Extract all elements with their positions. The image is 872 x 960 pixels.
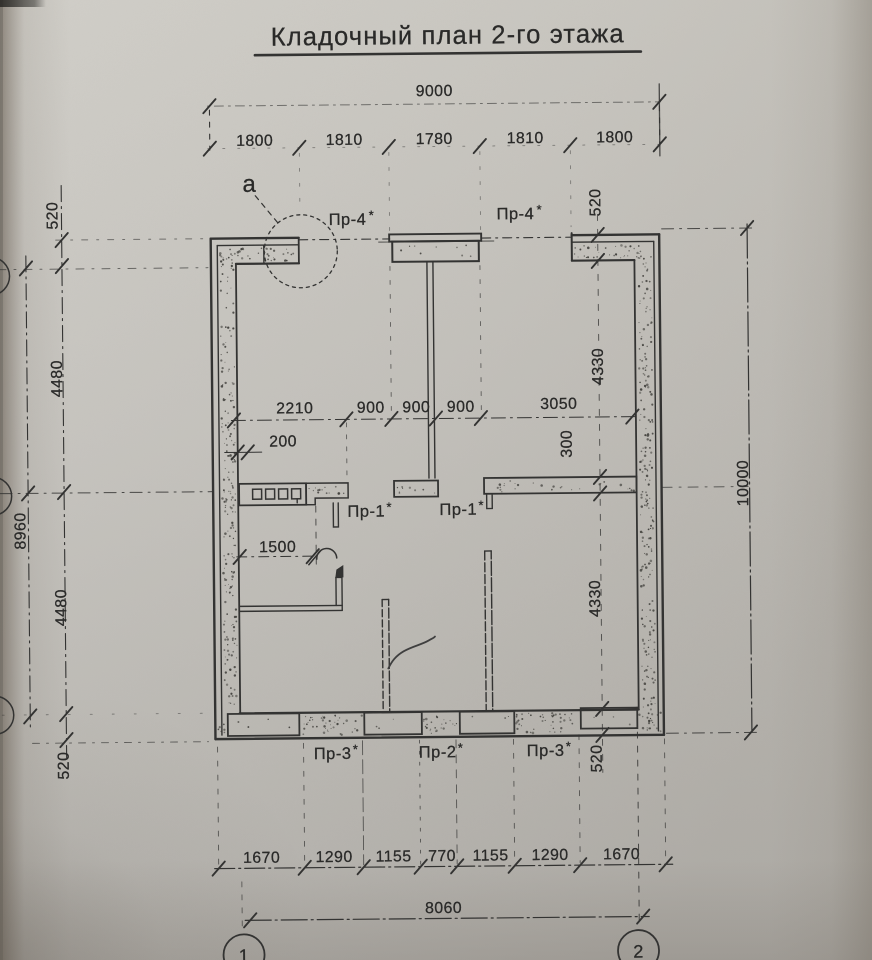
svg-text:1155: 1155 xyxy=(473,847,509,864)
svg-text:770: 770 xyxy=(428,848,456,865)
svg-text:4480: 4480 xyxy=(53,589,70,626)
svg-text:Пр-1: Пр-1 xyxy=(439,501,477,519)
svg-text:520: 520 xyxy=(56,752,73,780)
svg-text:1800: 1800 xyxy=(236,133,273,150)
svg-text:900: 900 xyxy=(357,399,385,416)
svg-text:1810: 1810 xyxy=(507,130,544,147)
svg-text:2: 2 xyxy=(633,942,644,960)
svg-text:Пр-1: Пр-1 xyxy=(347,502,385,520)
svg-text:1670: 1670 xyxy=(243,850,280,867)
svg-text:1: 1 xyxy=(239,946,250,960)
svg-text:Пр-4: Пр-4 xyxy=(497,205,535,223)
svg-text:4480: 4480 xyxy=(49,360,66,397)
svg-text:1780: 1780 xyxy=(416,131,453,148)
svg-text:1290: 1290 xyxy=(531,847,568,864)
svg-text:8060: 8060 xyxy=(425,900,462,917)
svg-text:10000: 10000 xyxy=(735,460,752,507)
svg-text:*: * xyxy=(458,740,464,755)
svg-text:1290: 1290 xyxy=(315,849,352,866)
svg-text:2210: 2210 xyxy=(276,400,313,417)
svg-text:Пр-4: Пр-4 xyxy=(329,211,367,229)
svg-text:Пр-3: Пр-3 xyxy=(314,745,352,763)
svg-text:*: * xyxy=(353,742,359,757)
svg-text:Пр-3: Пр-3 xyxy=(527,742,565,760)
svg-text:4330: 4330 xyxy=(587,580,604,617)
svg-text:520: 520 xyxy=(44,202,61,230)
svg-text:900: 900 xyxy=(402,399,430,416)
svg-text:*: * xyxy=(566,739,572,754)
svg-text:*: * xyxy=(369,208,375,223)
svg-text:1810: 1810 xyxy=(326,132,363,149)
svg-text:520: 520 xyxy=(589,744,606,772)
svg-text:1155: 1155 xyxy=(376,848,412,865)
svg-text:*: * xyxy=(386,499,392,514)
svg-text:8960: 8960 xyxy=(12,512,29,549)
svg-text:4330: 4330 xyxy=(590,348,607,385)
svg-text:а: а xyxy=(242,171,256,198)
svg-text:1670: 1670 xyxy=(603,846,640,863)
svg-text:900: 900 xyxy=(447,399,475,416)
svg-text:520: 520 xyxy=(587,188,604,216)
svg-text:1800: 1800 xyxy=(596,129,633,146)
svg-text:*: * xyxy=(478,498,484,513)
svg-text:*: * xyxy=(537,202,543,217)
svg-text:9000: 9000 xyxy=(416,83,453,100)
svg-text:200: 200 xyxy=(269,433,297,450)
svg-text:Пр-2: Пр-2 xyxy=(419,743,457,761)
svg-text:1500: 1500 xyxy=(259,539,296,556)
svg-text:Кладочный план 2-го этажа: Кладочный план 2-го этажа xyxy=(271,18,625,51)
svg-text:3050: 3050 xyxy=(540,396,577,413)
svg-text:300: 300 xyxy=(559,430,576,458)
